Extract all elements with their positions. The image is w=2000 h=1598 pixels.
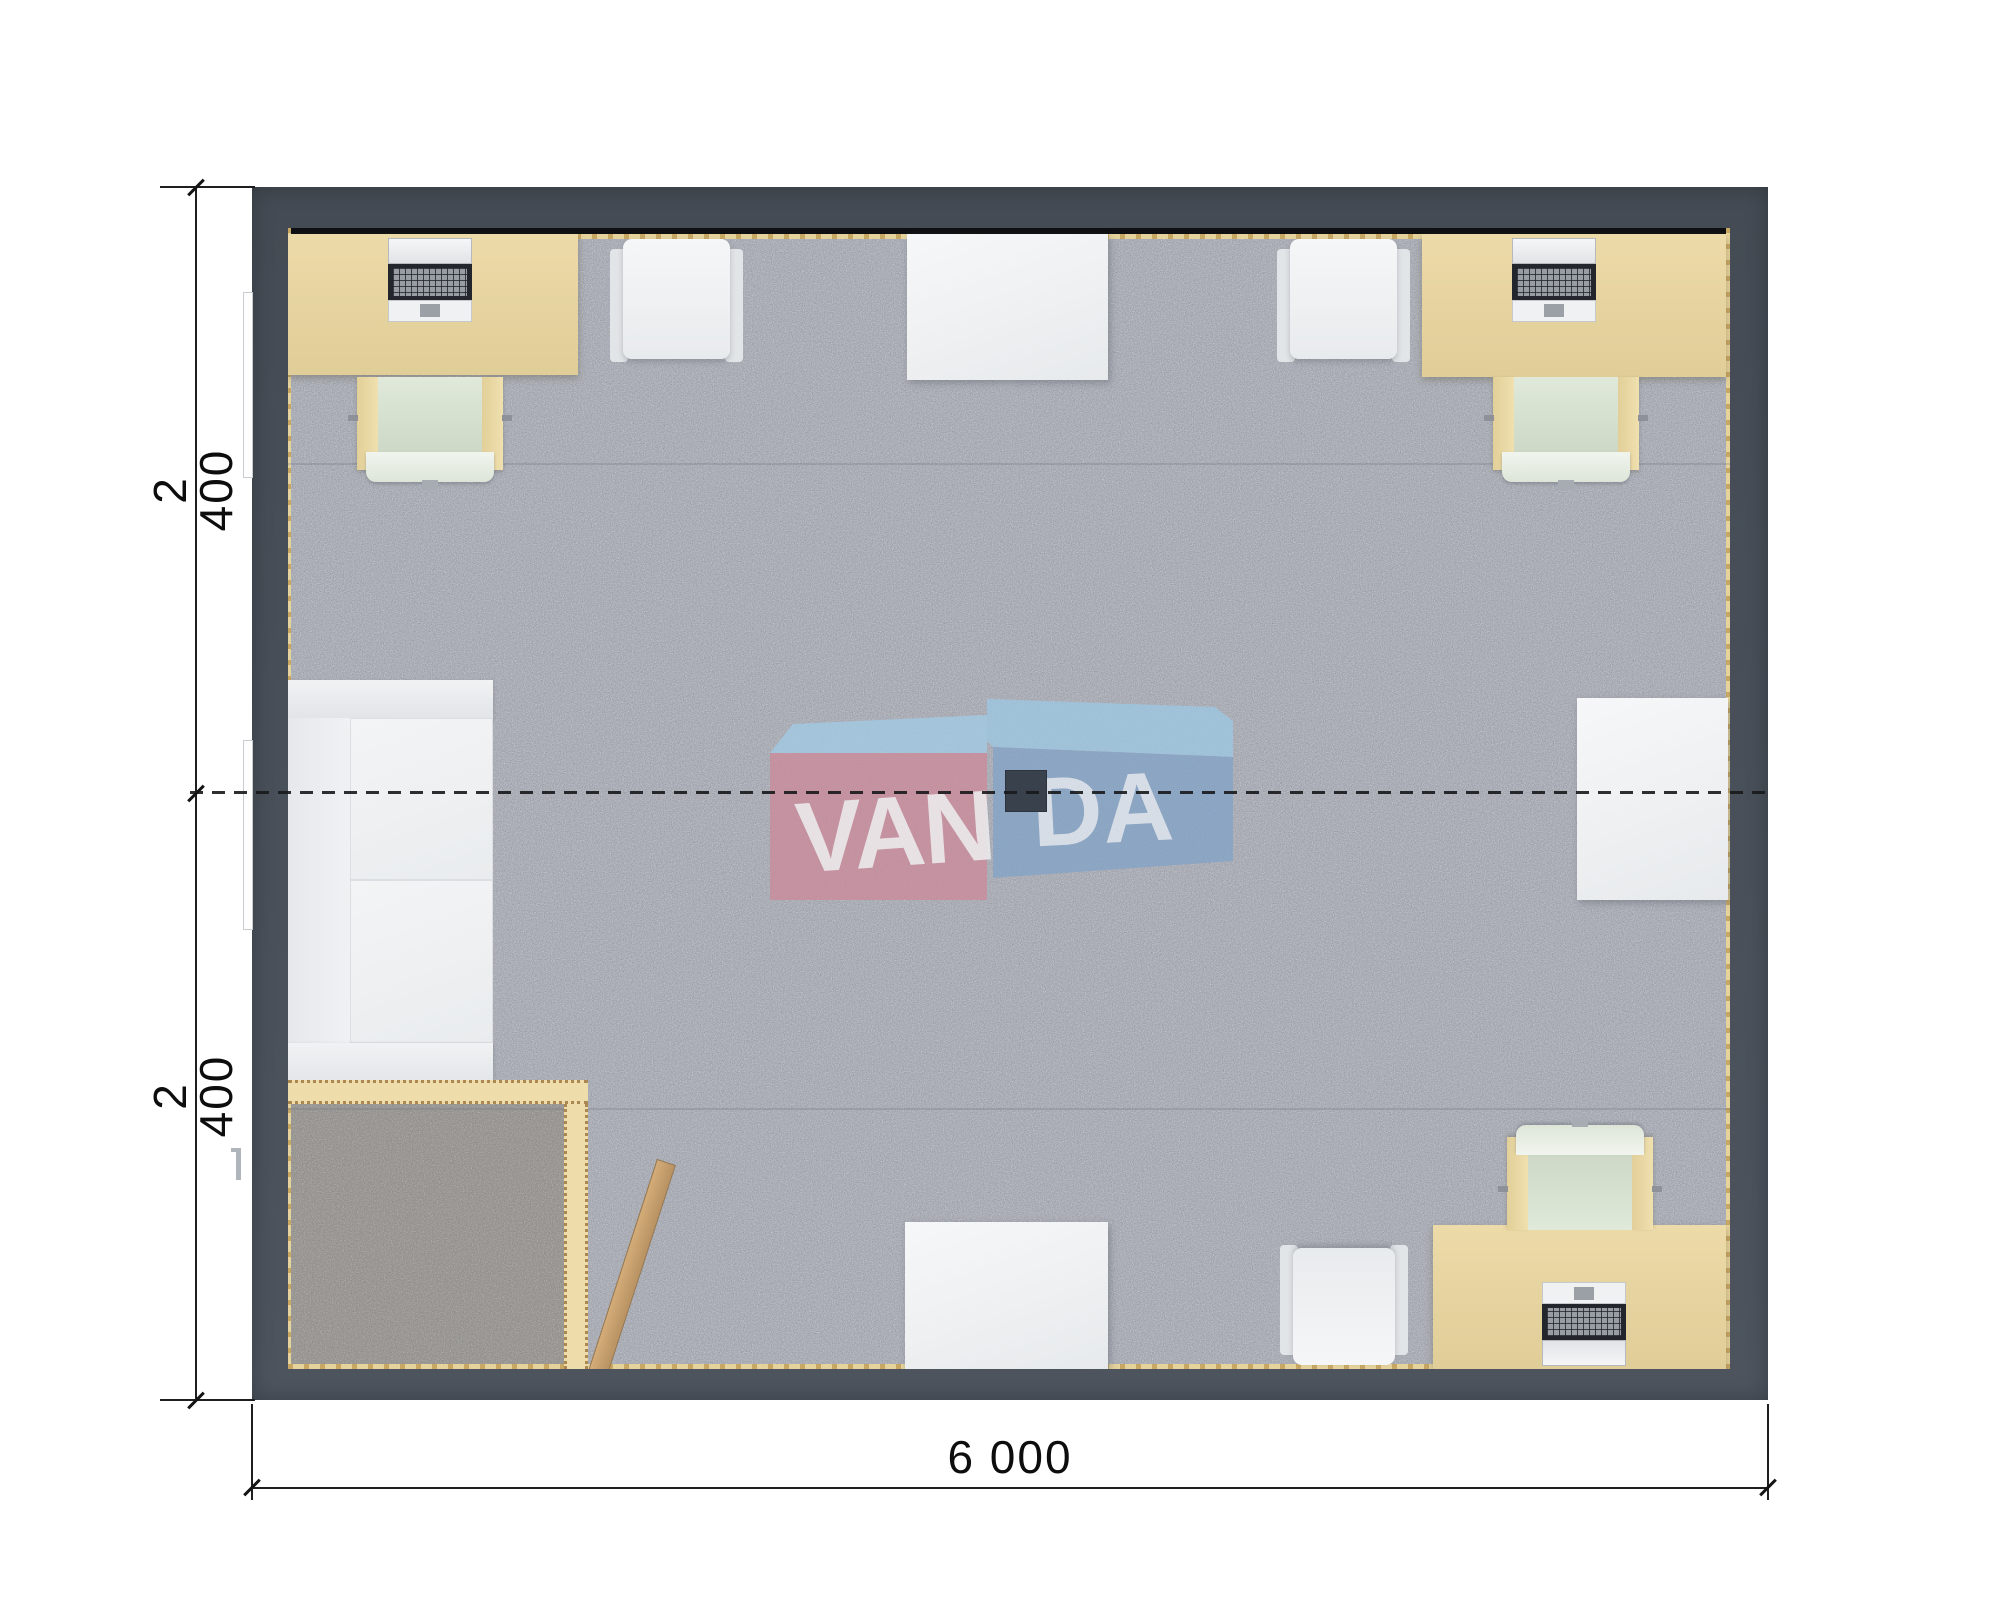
laptop-screen bbox=[1542, 1340, 1626, 1366]
table-bottom-center bbox=[905, 1222, 1108, 1369]
trackpad bbox=[1544, 304, 1564, 317]
door-handle-icon bbox=[231, 1148, 241, 1152]
office-chair-bottom-right bbox=[1507, 1118, 1653, 1230]
entry-partition-wall-horizontal bbox=[288, 1080, 588, 1104]
laptop-screen bbox=[1512, 238, 1596, 264]
extension-line-top-left bbox=[160, 186, 255, 188]
side-table-right bbox=[1577, 698, 1728, 900]
laptop-base bbox=[1542, 1282, 1626, 1304]
dimension-line-bottom bbox=[252, 1487, 1768, 1489]
window-left-lower bbox=[243, 740, 253, 930]
laptop-screen bbox=[388, 238, 472, 264]
sofa-seat-cushion bbox=[350, 880, 493, 1043]
carpet-seam bbox=[288, 1108, 1730, 1110]
computer-bottom-right bbox=[1542, 1282, 1626, 1366]
sofa-seat-cushion bbox=[350, 718, 493, 880]
office-chair-top-left bbox=[357, 377, 503, 489]
entry-partition-wall-vertical bbox=[564, 1104, 588, 1369]
laptop-base bbox=[388, 300, 472, 322]
dimension-label-bottom: 6 000 bbox=[930, 1434, 1090, 1480]
laptop-base bbox=[1512, 300, 1596, 322]
dimension-label-left-top: 2 400 bbox=[147, 430, 193, 550]
laptop-keyboard bbox=[388, 264, 472, 300]
window-left-upper bbox=[243, 292, 253, 478]
extension-line-bottom-left bbox=[160, 1399, 255, 1401]
sofa-armrest-top bbox=[288, 680, 493, 718]
meeting-table-top bbox=[907, 234, 1108, 380]
module-joint-dashed-line bbox=[190, 791, 1770, 794]
trackpad bbox=[420, 304, 440, 317]
table-leg bbox=[999, 380, 1015, 388]
door-handle-icon bbox=[236, 1150, 241, 1180]
laptop-keyboard bbox=[1512, 264, 1596, 300]
computer-top-right bbox=[1512, 238, 1596, 322]
trackpad bbox=[1574, 1287, 1594, 1300]
floor-plan-canvas: VAN DA 2 400 2 400 6 000 bbox=[0, 0, 2000, 1598]
armchair-top-left bbox=[610, 236, 743, 367]
laptop-keyboard bbox=[1542, 1304, 1626, 1340]
interior-floor: VAN DA bbox=[288, 228, 1730, 1369]
sofa-backrest bbox=[288, 718, 350, 1043]
computer-top-left bbox=[388, 238, 472, 322]
vanda-watermark: VAN DA bbox=[760, 695, 1240, 910]
watermark-text-left: VAN bbox=[792, 769, 997, 895]
armchair-bottom bbox=[1280, 1240, 1408, 1368]
dimension-label-left-bottom: 2 400 bbox=[147, 1036, 193, 1156]
armchair-top-right bbox=[1277, 236, 1410, 367]
office-chair-top-right bbox=[1493, 377, 1639, 489]
watermark-text-right: DA bbox=[1029, 750, 1176, 867]
